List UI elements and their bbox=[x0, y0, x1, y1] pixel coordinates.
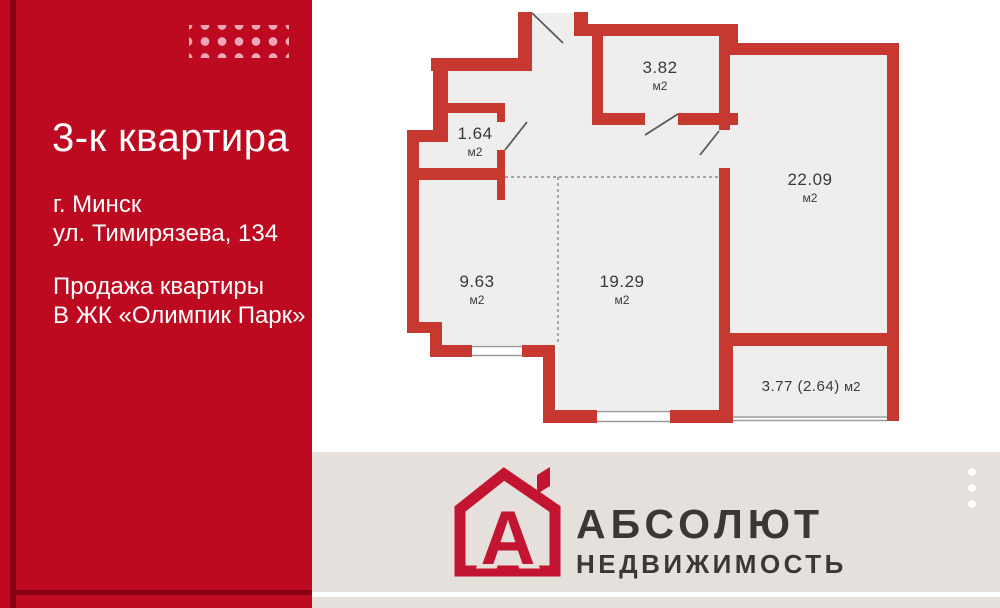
room-area-value: 3.77 (2.64) bbox=[762, 378, 840, 395]
brand-bar: А АБСОЛЮТ НЕДВИЖИМОСТЬ bbox=[312, 452, 1000, 592]
room-area-unit: м2 bbox=[440, 293, 514, 307]
house-chimney bbox=[537, 467, 550, 494]
decor-dots-grid bbox=[189, 25, 289, 58]
brand-logo-house-icon: А bbox=[453, 464, 565, 584]
room-area-value: 9.63 bbox=[440, 272, 514, 292]
page-title: 3-к квартира bbox=[52, 116, 312, 161]
logo-letter: А bbox=[481, 496, 536, 581]
room-area-value: 22.09 bbox=[773, 170, 847, 190]
room-area-label-balcony: 3.77 (2.64) м2 bbox=[735, 378, 887, 396]
room-area-label-22-09: 22.09 м2 bbox=[773, 170, 847, 205]
offer-line-1: Продажа квартиры bbox=[53, 272, 306, 301]
room-area-unit: м2 bbox=[773, 191, 847, 205]
room-area-label-9-63: 9.63 м2 bbox=[440, 272, 514, 307]
brand-name: АБСОЛЮТ bbox=[576, 502, 847, 546]
brand-subtitle: НЕДВИЖИМОСТЬ bbox=[576, 549, 847, 580]
address-city: г. Минск bbox=[53, 190, 278, 219]
brand-text-block: АБСОЛЮТ НЕДВИЖИМОСТЬ bbox=[576, 502, 847, 580]
room-area-value: 19.29 bbox=[585, 272, 659, 292]
room-area-unit: м2 bbox=[844, 379, 860, 394]
room-area-unit: м2 bbox=[438, 145, 512, 159]
room-area-value: 1.64 bbox=[438, 124, 512, 144]
vertical-dots-decor bbox=[966, 464, 978, 512]
room-area-label-19-29: 19.29 м2 bbox=[585, 272, 659, 307]
panel-accent-line-vertical bbox=[10, 0, 16, 608]
offer-line-2: В ЖК «Олимпик Парк» bbox=[53, 301, 306, 330]
room-area-value: 3.82 bbox=[623, 58, 697, 78]
offer-block: Продажа квартиры В ЖК «Олимпик Парк» bbox=[53, 272, 306, 330]
panel-accent-line-horizontal bbox=[10, 590, 312, 595]
floor-plan: 1.64 м2 3.82 м2 22.09 м2 9.63 м2 19.29 м… bbox=[395, 0, 910, 450]
page: 3-к квартира г. Минск ул. Тимирязева, 13… bbox=[0, 0, 1000, 608]
room-area-unit: м2 bbox=[585, 293, 659, 307]
address-block: г. Минск ул. Тимирязева, 134 bbox=[53, 190, 278, 248]
bottom-strip bbox=[312, 597, 1000, 608]
info-panel: 3-к квартира г. Минск ул. Тимирязева, 13… bbox=[0, 0, 312, 608]
room-area-label-3-82: 3.82 м2 bbox=[623, 58, 697, 93]
room-area-unit: м2 bbox=[623, 79, 697, 93]
room-area-label-1-64: 1.64 м2 bbox=[438, 124, 512, 159]
address-street: ул. Тимирязева, 134 bbox=[53, 219, 278, 248]
